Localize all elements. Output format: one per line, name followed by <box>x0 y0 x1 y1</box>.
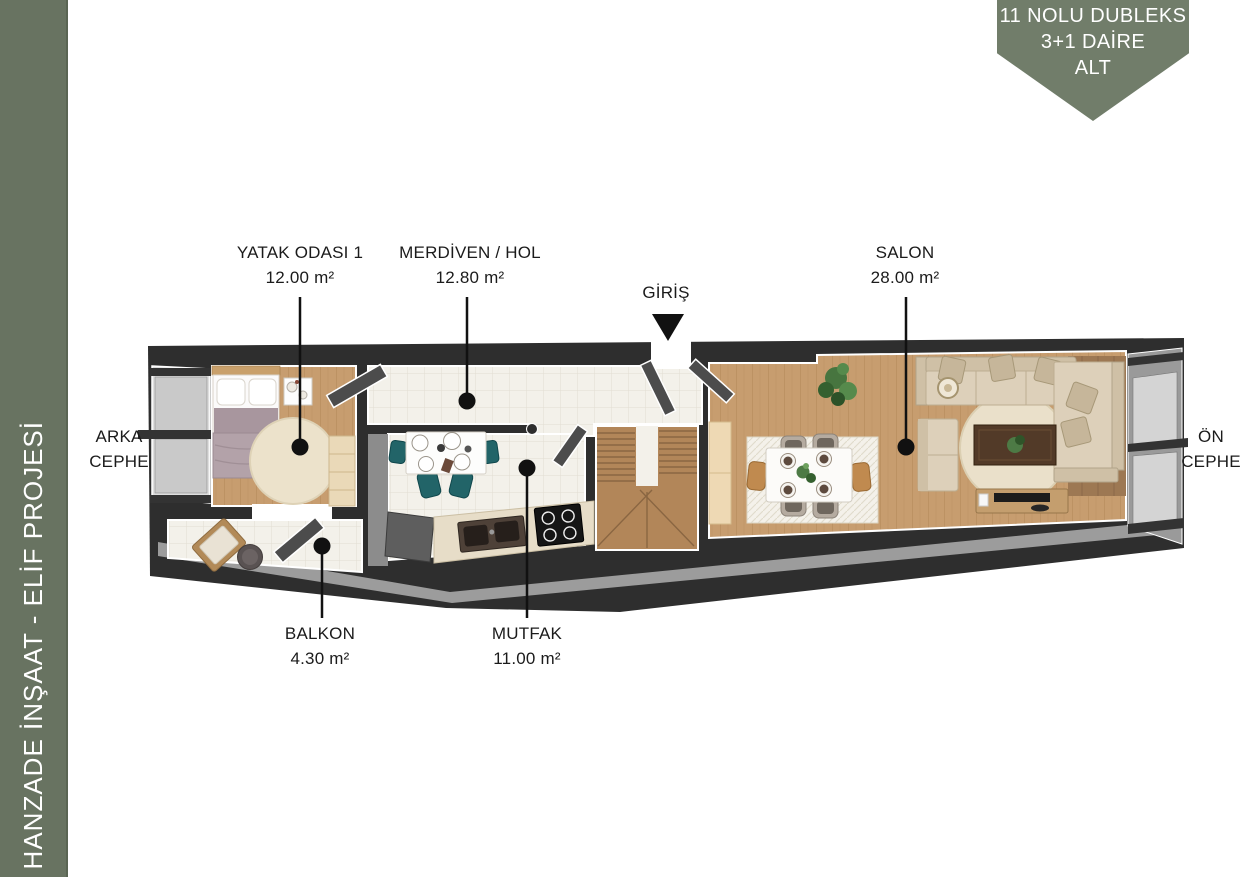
loveseat <box>918 419 958 491</box>
tv <box>994 493 1050 502</box>
room-name: MERDİVEN / HOL <box>380 240 560 265</box>
room-area: 12.00 m² <box>210 265 390 290</box>
window-glass <box>1133 372 1177 448</box>
room-area: 28.00 m² <box>815 265 995 290</box>
window-frame <box>150 368 212 376</box>
window-glass <box>155 439 207 493</box>
pillow <box>249 379 276 405</box>
kitchen-side-wall <box>368 434 388 566</box>
dresser <box>329 436 355 506</box>
decor <box>295 380 299 384</box>
room-area: 4.30 m² <box>230 646 410 671</box>
label-merdiven-hol: MERDİVEN / HOL 12.80 m² <box>380 240 560 290</box>
callout-dot <box>314 538 331 555</box>
cooktop <box>534 504 584 547</box>
room-area: 11.00 m² <box>437 646 617 671</box>
room-name: MUTFAK <box>437 621 617 646</box>
room-name: YATAK ODASI 1 <box>210 240 390 265</box>
floor-plan-page: HANZADE İNŞAAT - ELİF PROJESİ 11 NOLU DU… <box>0 0 1240 877</box>
window-glass <box>1133 452 1177 528</box>
label-salon: SALON 28.00 m² <box>815 240 995 290</box>
coffee-table <box>974 425 1056 465</box>
front-window-bay <box>1128 348 1188 544</box>
label-on-cephe: ÖN CEPHE <box>1180 424 1240 474</box>
window-frame <box>150 495 212 503</box>
label-balkon: BALKON 4.30 m² <box>230 621 410 671</box>
room-name: BALKON <box>230 621 410 646</box>
dining-chair <box>747 461 768 491</box>
callout-dot <box>292 439 309 456</box>
bed-headboard <box>212 366 280 375</box>
room-area: 12.80 m² <box>380 265 560 290</box>
tv-unit <box>976 489 1068 513</box>
floor-plan-drawing <box>0 0 1240 877</box>
balcony-door-opening <box>252 504 332 521</box>
entrance-opening <box>651 341 691 369</box>
dining-chair <box>389 440 408 464</box>
bedroom-rug <box>250 418 336 504</box>
pillow <box>217 379 245 405</box>
wall-end-cap <box>527 424 538 435</box>
label-yatak-odasi: YATAK ODASI 1 12.00 m² <box>210 240 390 290</box>
stair-landing-gap <box>636 426 658 486</box>
callout-dot <box>898 439 915 456</box>
window-glass <box>155 377 207 431</box>
dining-chair <box>851 462 872 492</box>
callout-dot <box>519 460 536 477</box>
decor <box>287 382 297 392</box>
callout-dot <box>459 393 476 410</box>
room-name: GİRİŞ <box>616 280 716 305</box>
entry-arrow <box>652 314 684 341</box>
room-name: SALON <box>815 240 995 265</box>
label-arka-cephe: ARKA CEPHE <box>78 424 160 474</box>
sink <box>458 516 527 553</box>
label-mutfak: MUTFAK 11.00 m² <box>437 621 617 671</box>
label-giris: GİRİŞ <box>616 280 716 305</box>
refrigerator <box>385 512 434 562</box>
